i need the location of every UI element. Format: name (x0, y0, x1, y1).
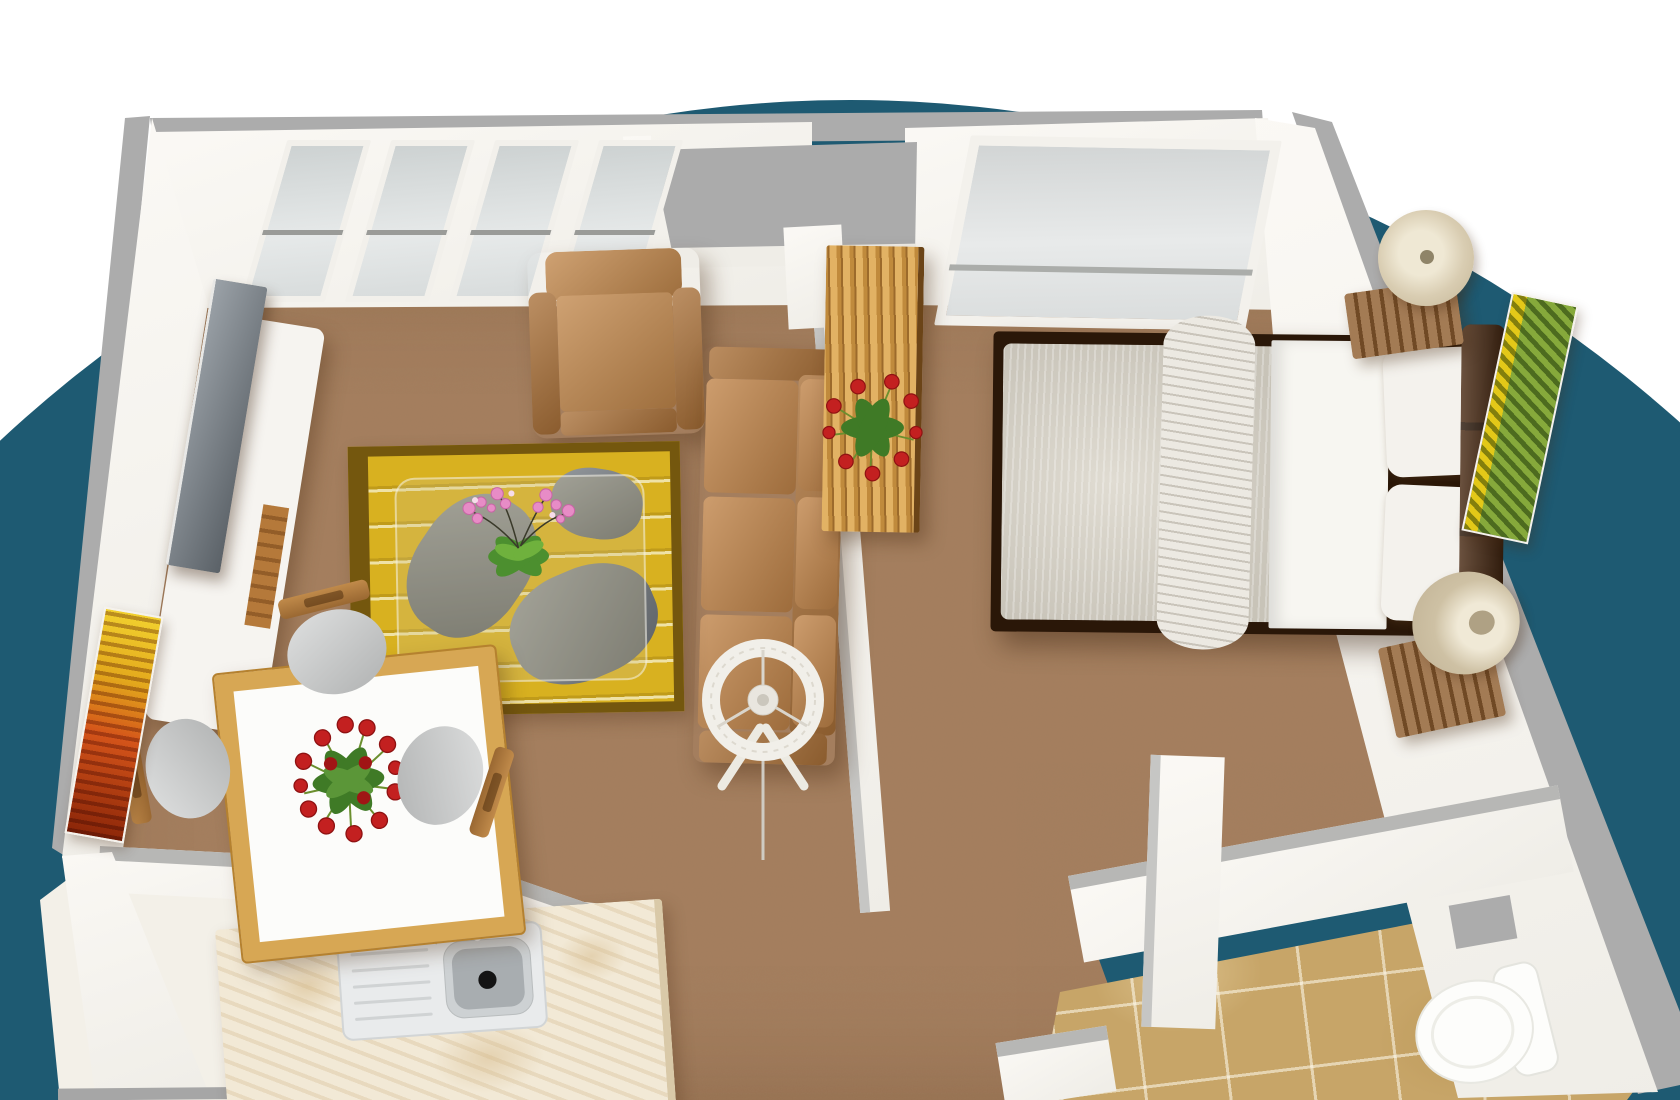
bathroom-partition-stub (1141, 755, 1224, 1029)
armchair-seat (556, 292, 676, 412)
armchair-front (560, 408, 677, 436)
floorplan-scene (0, 0, 1680, 1100)
table-lamp-top (1378, 210, 1474, 306)
sofa-seat-cushion (701, 496, 796, 612)
sofa-seat-cushion (704, 378, 799, 494)
rumpled-throw-blanket (1156, 314, 1256, 650)
bed-sheet (1268, 340, 1389, 629)
tulip-bouquet-dresser (800, 360, 945, 505)
chair-seat (138, 712, 238, 825)
armchair-arm (672, 287, 705, 430)
pedestal-fan (688, 628, 838, 868)
orchid-centerpiece (446, 469, 590, 603)
leather-armchair (527, 247, 705, 439)
bedroom-window (934, 135, 1282, 330)
